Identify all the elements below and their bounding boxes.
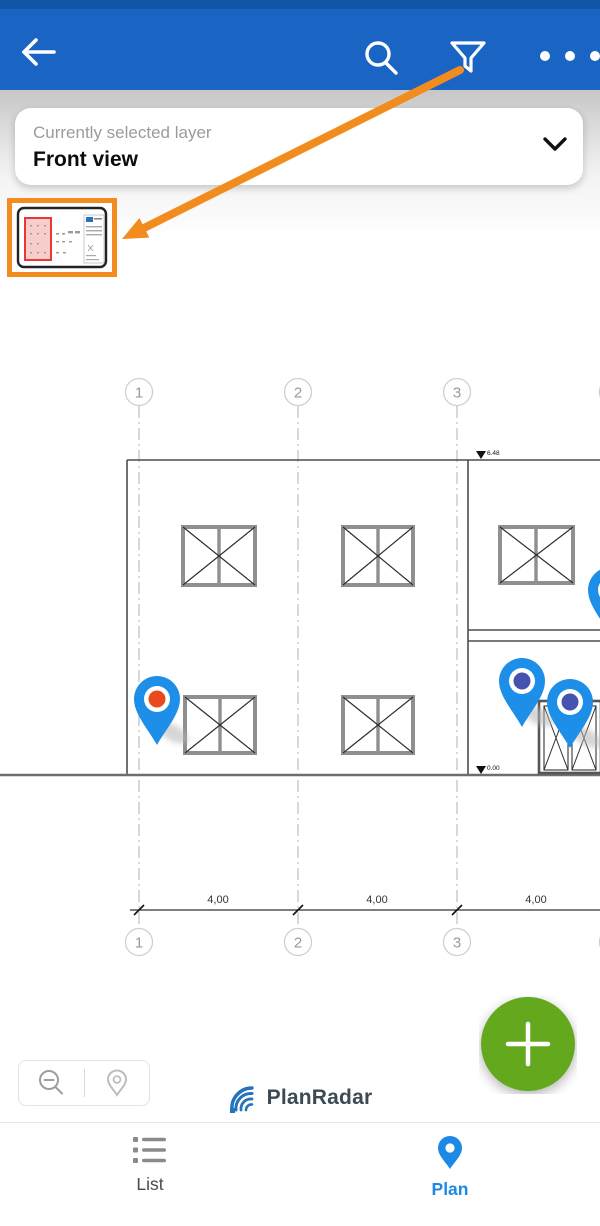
dimension-label: 4,00 bbox=[207, 894, 228, 906]
tab-plan[interactable]: Plan bbox=[300, 1123, 600, 1226]
filter-funnel-icon bbox=[452, 43, 484, 71]
plan-thumbnail-preview bbox=[12, 203, 112, 272]
issue-pin-indigo-3-partial[interactable] bbox=[588, 567, 600, 636]
window bbox=[185, 697, 255, 753]
dimension-label: 4,00 bbox=[366, 894, 387, 906]
layer-selector-label: Currently selected layer bbox=[33, 123, 212, 143]
dimension-label: 4,00 bbox=[525, 894, 546, 906]
tab-plan-label: Plan bbox=[432, 1179, 469, 1200]
grid-axis-lines bbox=[139, 406, 457, 929]
list-icon bbox=[131, 1135, 169, 1165]
level-marker-ground: 0.00 bbox=[476, 765, 500, 774]
dimension-line: 4,00 4,00 4,00 bbox=[130, 894, 600, 915]
search-button[interactable] bbox=[362, 40, 402, 78]
plan-pin-icon bbox=[436, 1135, 464, 1170]
app-screen: Currently selected layer Front view bbox=[0, 0, 600, 1226]
bottom-navigation: List Plan bbox=[0, 1122, 600, 1226]
grid-label: 2 bbox=[294, 385, 302, 402]
window bbox=[500, 527, 573, 583]
thumbnail-selected-region bbox=[25, 218, 51, 260]
three-dots-icon bbox=[540, 51, 600, 61]
tab-list[interactable]: List bbox=[0, 1123, 300, 1226]
overflow-menu-button[interactable] bbox=[534, 48, 600, 64]
window bbox=[183, 527, 255, 585]
search-icon bbox=[367, 43, 396, 73]
planradar-logo-icon bbox=[228, 1082, 260, 1114]
grid-label: 1 bbox=[135, 935, 143, 952]
header-bar bbox=[0, 0, 600, 90]
filter-button[interactable] bbox=[447, 40, 489, 76]
grid-bubbles-bottom: 1 2 3 bbox=[126, 929, 600, 956]
back-arrow-icon bbox=[24, 40, 54, 64]
pin-body bbox=[588, 567, 600, 636]
grid-label: 3 bbox=[453, 385, 461, 402]
plan-canvas[interactable]: 1 2 3 6.48 0.00 bbox=[0, 340, 600, 985]
grid-label: 3 bbox=[453, 935, 461, 952]
level-marker-top: 6.48 bbox=[476, 450, 500, 459]
grid-bubbles-top: 1 2 3 bbox=[126, 379, 600, 406]
grid-label: 1 bbox=[135, 385, 143, 402]
planradar-logo-text: PlanRadar bbox=[267, 1086, 373, 1110]
tab-list-label: List bbox=[136, 1174, 163, 1195]
issue-pin-indigo-1[interactable] bbox=[499, 658, 557, 731]
grid-label: 2 bbox=[294, 935, 302, 952]
svg-text:0.00: 0.00 bbox=[487, 765, 500, 772]
window bbox=[343, 697, 413, 753]
pin-dot bbox=[514, 673, 531, 690]
chevron-down-icon bbox=[541, 134, 569, 154]
layer-selector[interactable]: Currently selected layer Front view bbox=[15, 108, 583, 185]
window bbox=[343, 527, 413, 585]
plan-thumbnail[interactable] bbox=[7, 198, 117, 277]
layer-selector-value: Front view bbox=[33, 148, 138, 172]
add-issue-fab[interactable] bbox=[479, 996, 577, 1094]
back-button[interactable] bbox=[16, 32, 60, 72]
pin-dot bbox=[562, 694, 579, 711]
pin-dot bbox=[149, 691, 166, 708]
svg-text:6.48: 6.48 bbox=[487, 450, 500, 457]
